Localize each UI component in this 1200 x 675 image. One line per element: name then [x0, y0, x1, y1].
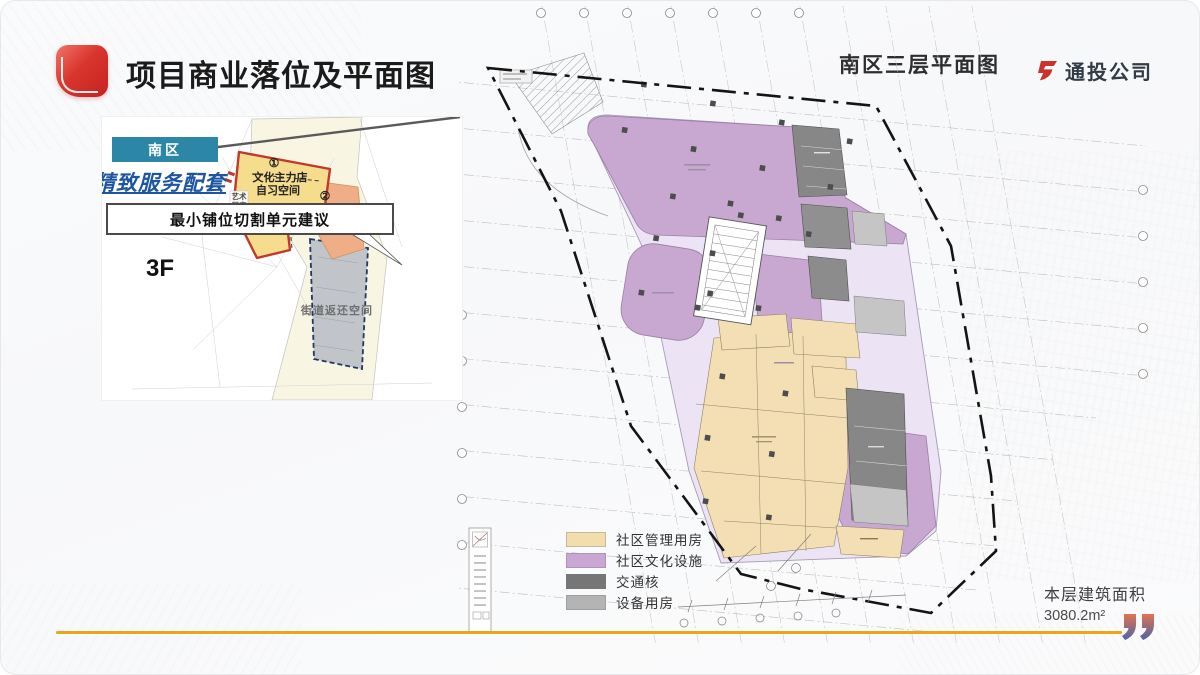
inset-plan-panel: 艺术 展廊 ① 文化主力店 自习空间 ② 文创茶室 街道返还空间 南区 精致服务… — [101, 116, 463, 401]
quote-icon — [1122, 614, 1158, 642]
legend-label: 设备用房 — [616, 592, 674, 612]
legend-label: 社区管理用房 — [616, 529, 703, 549]
inset-headline: 精致服务配套 — [101, 167, 226, 197]
region-tag: 南区 — [112, 137, 218, 162]
corner-texture — [1, 584, 301, 674]
street-return-zone — [310, 239, 368, 369]
street-return-label: 街道返还空间 — [300, 303, 373, 317]
plan-legend: 社区管理用房 社区文化设施 交通核 设备用房 — [566, 532, 703, 609]
main-floor-plan — [456, 6, 1151, 654]
drawing-title-strip — [469, 528, 491, 632]
legend-row: 社区管理用房 — [566, 532, 703, 546]
title-accent-icon — [56, 45, 108, 97]
legend-swatch-equipment — [566, 595, 606, 610]
legend-label: 交通核 — [616, 571, 660, 591]
legend-label: 社区文化设施 — [616, 550, 703, 570]
callout1-line2: 自习空间 — [256, 183, 300, 197]
gallery-label-line1: 艺术 — [232, 191, 247, 201]
legend-row: 设备用房 — [566, 595, 703, 609]
callout1-number: ① — [269, 156, 280, 170]
legend-swatch-management — [566, 532, 606, 547]
callout1-line1: 文化主力店 — [253, 170, 308, 184]
floor-area-label: 本层建筑面积 — [1044, 581, 1146, 605]
legend-swatch-culture — [566, 553, 606, 568]
legend-row: 社区文化设施 — [566, 553, 703, 567]
suggestion-note: 最小铺位切割单元建议 — [106, 203, 394, 235]
boundary-note — [500, 70, 532, 83]
footer-divider — [56, 631, 1122, 634]
slide-canvas: 项目商业落位及平面图 通投公司 南区三层平面图 — [0, 0, 1200, 675]
floor-label: 3F — [146, 255, 174, 283]
legend-row: 交通核 — [566, 574, 703, 588]
page-title: 项目商业落位及平面图 — [126, 51, 436, 95]
legend-swatch-core — [566, 574, 606, 589]
callout2-number: ② — [320, 189, 331, 203]
